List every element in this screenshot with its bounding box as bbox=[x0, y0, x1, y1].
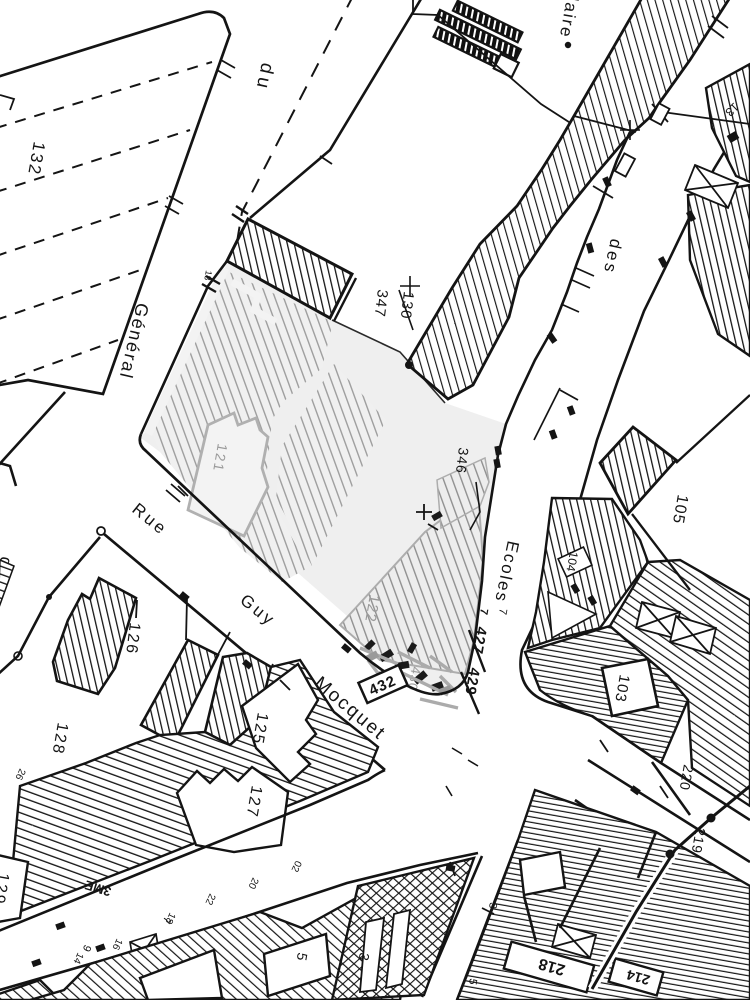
svg-text:130: 130 bbox=[397, 291, 417, 321]
svg-text:346: 346 bbox=[453, 447, 472, 475]
svg-text:347: 347 bbox=[371, 289, 391, 319]
